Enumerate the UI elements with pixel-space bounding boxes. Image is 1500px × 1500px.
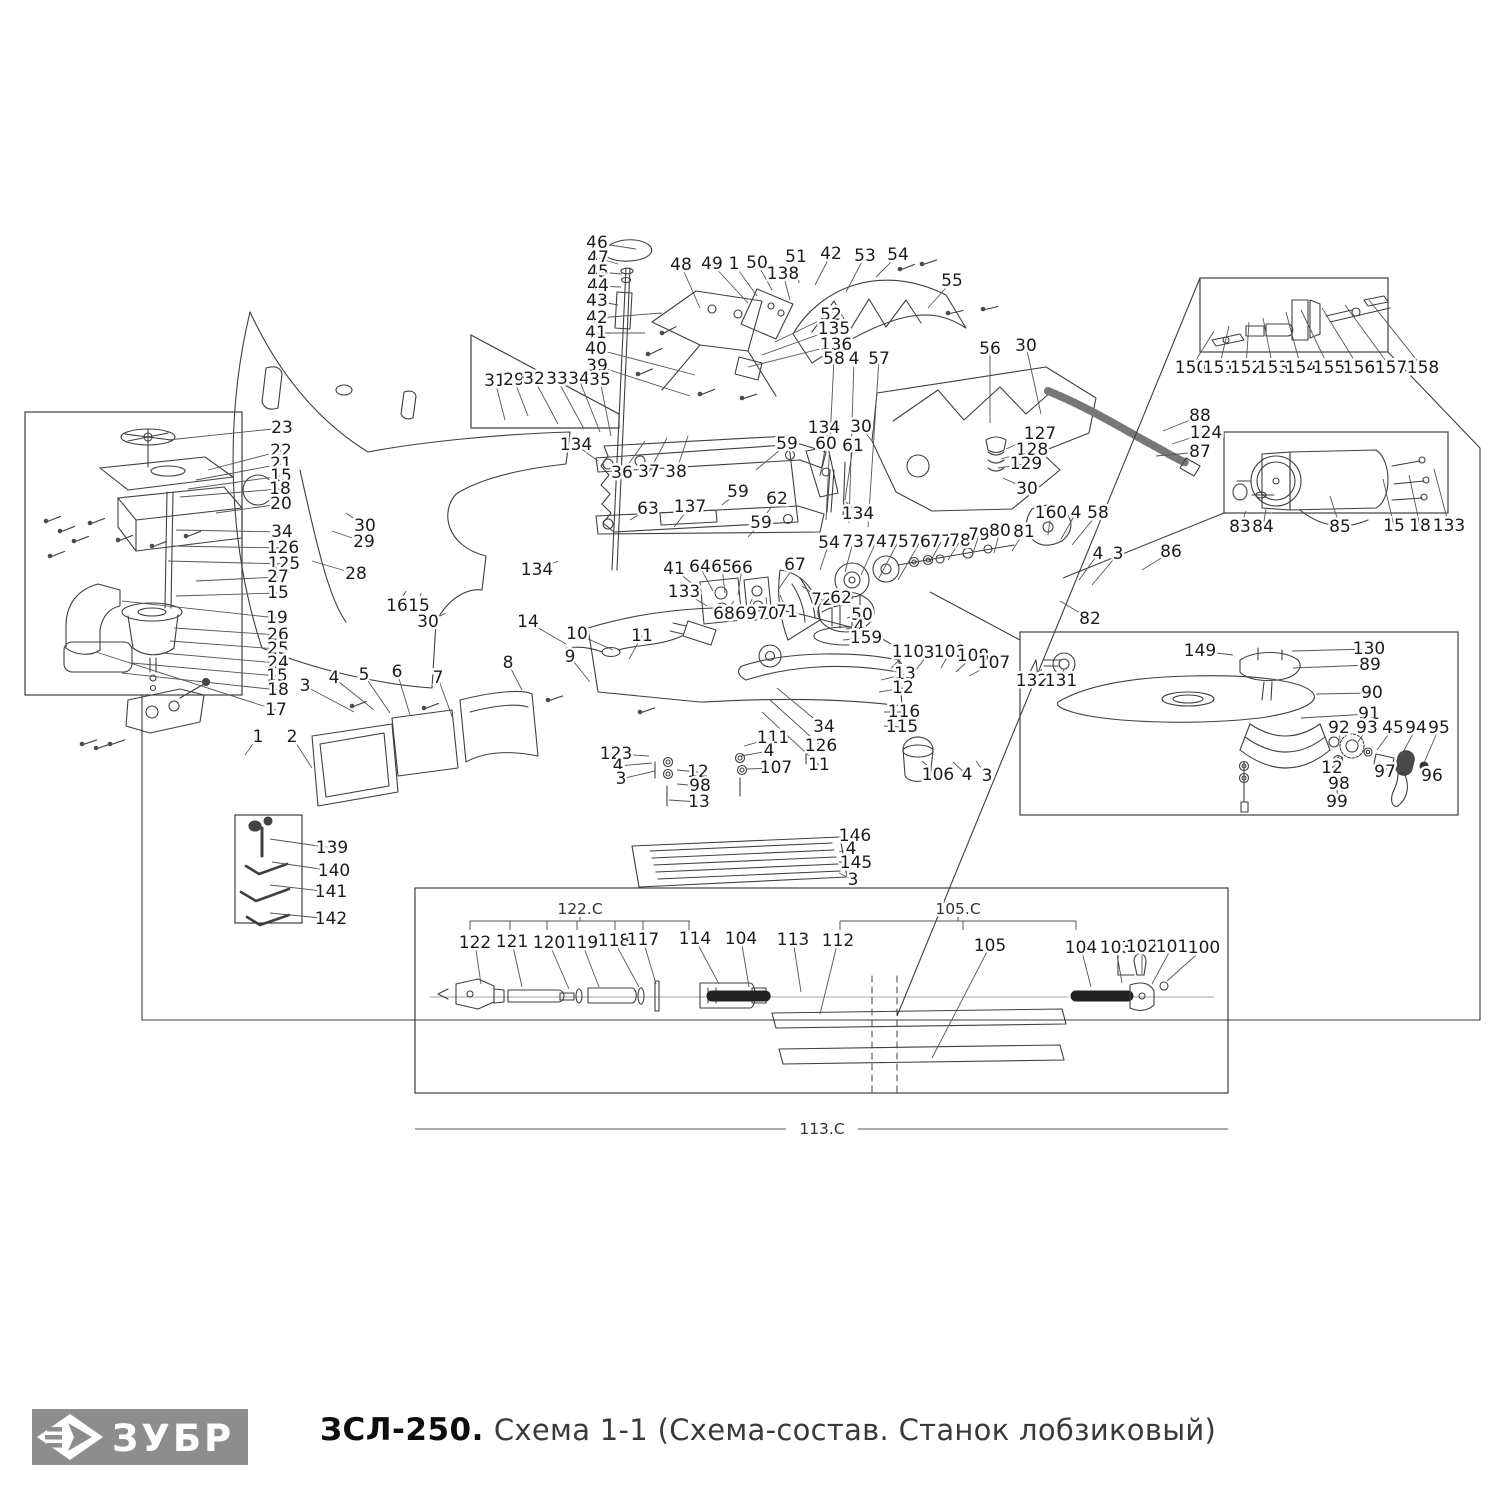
part-label: 133 bbox=[668, 582, 700, 602]
part-label: 37 bbox=[638, 462, 660, 482]
part-label: 104 bbox=[1065, 938, 1097, 958]
part-label: 54 bbox=[818, 533, 840, 553]
leader-line bbox=[196, 577, 278, 581]
part-label: 94 bbox=[1405, 718, 1427, 738]
group-label: 122.C bbox=[557, 900, 602, 918]
part-label: 156 bbox=[1343, 358, 1375, 378]
part-label: 4 bbox=[962, 765, 973, 785]
part-label: 59 bbox=[750, 513, 772, 533]
part-label: 114 bbox=[679, 929, 711, 949]
part-label: 65 bbox=[711, 557, 733, 577]
part-label: 131 bbox=[1045, 671, 1077, 691]
part-label: 62 bbox=[830, 588, 852, 608]
part-label: 4 bbox=[1071, 503, 1082, 523]
part-label: 118 bbox=[598, 931, 630, 951]
part-label: 57 bbox=[868, 349, 890, 369]
part-label: 55 bbox=[941, 271, 963, 291]
part-label: 75 bbox=[887, 532, 909, 552]
part-label: 30 bbox=[417, 612, 439, 632]
part-label: 3 bbox=[848, 870, 859, 890]
part-label: 3 bbox=[616, 769, 627, 789]
part-label: 59 bbox=[727, 482, 749, 502]
part-label: 107 bbox=[978, 653, 1010, 673]
part-label: 84 bbox=[1252, 517, 1274, 537]
part-label: 6 bbox=[392, 662, 403, 682]
part-label: 30 bbox=[1016, 479, 1038, 499]
leader-line bbox=[932, 946, 990, 1058]
part-label: 83 bbox=[1229, 517, 1251, 537]
part-label: 120 bbox=[533, 933, 565, 953]
part-label: 49 bbox=[701, 254, 723, 274]
part-label: 98 bbox=[1328, 774, 1350, 794]
zubr-logo: ЗУБР bbox=[32, 1409, 248, 1465]
part-label: 1 bbox=[253, 727, 264, 747]
leader-line bbox=[188, 476, 281, 489]
part-label: 64 bbox=[689, 557, 711, 577]
part-label: 3 bbox=[300, 676, 311, 696]
leader-line bbox=[122, 673, 278, 690]
leader-line bbox=[176, 593, 278, 596]
part-label: 23 bbox=[271, 418, 293, 438]
part-label: 16 bbox=[386, 596, 408, 616]
part-label: 138 bbox=[767, 264, 799, 284]
part-label: 20 bbox=[270, 494, 292, 514]
part-label: 5 bbox=[359, 665, 370, 685]
part-label: 105 bbox=[974, 936, 1006, 956]
part-label: 110 bbox=[892, 642, 924, 662]
part-label: 141 bbox=[315, 882, 347, 902]
part-label: 35 bbox=[589, 370, 611, 390]
logo-text: ЗУБР bbox=[112, 1417, 234, 1460]
part-label: 15 bbox=[1383, 516, 1405, 536]
detail-box bbox=[235, 815, 302, 923]
part-label: 106 bbox=[922, 765, 954, 785]
part-label: 95 bbox=[1428, 718, 1450, 738]
part-label: 15 bbox=[267, 583, 289, 603]
part-label: 34 bbox=[568, 369, 590, 389]
part-label: 139 bbox=[316, 838, 348, 858]
part-label: 155 bbox=[1313, 358, 1345, 378]
part-label: 87 bbox=[1189, 442, 1211, 462]
part-label: 61 bbox=[842, 436, 864, 456]
part-label: 54 bbox=[887, 245, 909, 265]
part-label: 62 bbox=[766, 489, 788, 509]
part-label: 36 bbox=[611, 463, 633, 483]
part-label: 107 bbox=[760, 758, 792, 778]
part-label: 58 bbox=[1087, 503, 1109, 523]
leader-line bbox=[868, 359, 879, 527]
part-label: 1 bbox=[729, 254, 740, 274]
part-label: 32 bbox=[523, 369, 545, 389]
part-label: 159 bbox=[850, 628, 882, 648]
part-label: 124 bbox=[1190, 423, 1222, 443]
part-label: 18 bbox=[1409, 516, 1431, 536]
part-label: 96 bbox=[1421, 766, 1443, 786]
part-label: 3 bbox=[982, 766, 993, 786]
part-label: 86 bbox=[1160, 542, 1182, 562]
part-label: 10 bbox=[566, 624, 588, 644]
connector-line bbox=[930, 592, 1020, 640]
section-label: 113.C bbox=[799, 1120, 844, 1138]
part-label: 92 bbox=[1328, 718, 1350, 738]
part-label: 50 bbox=[746, 253, 768, 273]
part-label: 133 bbox=[1433, 516, 1465, 536]
leader-line bbox=[305, 686, 354, 712]
part-label: 129 bbox=[1010, 454, 1042, 474]
detail-box bbox=[25, 412, 242, 695]
part-label: 12 bbox=[892, 678, 914, 698]
part-label: 13 bbox=[688, 792, 710, 812]
page: 4647454443424140394849150138514253545552… bbox=[0, 0, 1500, 1500]
part-label: 48 bbox=[670, 255, 692, 275]
part-label: 11 bbox=[631, 626, 653, 646]
part-label: 157 bbox=[1375, 358, 1407, 378]
part-label: 68 bbox=[713, 604, 735, 624]
leader-line bbox=[1026, 346, 1041, 414]
part-label: 76 bbox=[909, 532, 931, 552]
part-label: 51 bbox=[785, 247, 807, 267]
part-label: 134 bbox=[808, 418, 840, 438]
part-label: 41 bbox=[663, 559, 685, 579]
part-label: 158 bbox=[1407, 358, 1439, 378]
part-label: 29 bbox=[503, 370, 525, 390]
part-label: 42 bbox=[820, 244, 842, 264]
part-label: 53 bbox=[854, 246, 876, 266]
part-label: 28 bbox=[345, 564, 367, 584]
scheme-title: ЗСЛ-250. Схема 1-1 (Схема-состав. Станок… bbox=[320, 1412, 1216, 1448]
part-label: 8 bbox=[503, 653, 514, 673]
part-label: 59 bbox=[776, 434, 798, 454]
leader-line bbox=[170, 641, 278, 649]
part-label: 113 bbox=[777, 930, 809, 950]
part-label: 142 bbox=[315, 909, 347, 929]
part-label: 34 bbox=[813, 717, 835, 737]
part-label: 104 bbox=[725, 929, 757, 949]
part-label: 63 bbox=[637, 499, 659, 519]
part-label: 132 bbox=[1016, 671, 1048, 691]
part-label: 18 bbox=[267, 680, 289, 700]
part-label: 7 bbox=[433, 668, 444, 688]
part-label: 79 bbox=[968, 525, 990, 545]
part-label: 134 bbox=[560, 435, 592, 455]
part-label: 101 bbox=[1156, 937, 1188, 957]
part-label: 58 bbox=[823, 349, 845, 369]
part-label: 73 bbox=[842, 532, 864, 552]
part-label: 160 bbox=[1035, 503, 1067, 523]
part-label: 17 bbox=[265, 700, 287, 720]
part-label: 100 bbox=[1188, 938, 1220, 958]
part-label: 71 bbox=[776, 602, 798, 622]
part-label: 9 bbox=[565, 647, 576, 667]
part-label: 38 bbox=[665, 462, 687, 482]
part-label: 30 bbox=[1015, 336, 1037, 356]
part-label: 2 bbox=[287, 727, 298, 747]
part-label: 89 bbox=[1359, 655, 1381, 675]
part-label: 11 bbox=[808, 755, 830, 775]
part-label: 134 bbox=[842, 504, 874, 524]
leader-line bbox=[132, 663, 277, 676]
part-label: 112 bbox=[822, 931, 854, 951]
leader-line bbox=[168, 561, 284, 564]
leader-line bbox=[174, 628, 278, 635]
leader-line bbox=[176, 530, 282, 532]
part-label: 97 bbox=[1374, 762, 1396, 782]
part-label: 121 bbox=[496, 932, 528, 952]
part-label: 4 bbox=[1093, 544, 1104, 564]
part-label: 4 bbox=[329, 668, 340, 688]
part-label: 30 bbox=[850, 417, 872, 437]
footer: ЗУБР ЗСЛ-250. Схема 1-1 (Схема-состав. С… bbox=[0, 1398, 1500, 1478]
part-label: 134 bbox=[521, 560, 553, 580]
part-label: 119 bbox=[566, 933, 598, 953]
part-label: 80 bbox=[989, 521, 1011, 541]
leader-line bbox=[162, 653, 278, 663]
leader-line bbox=[596, 349, 695, 375]
part-label: 149 bbox=[1184, 641, 1216, 661]
part-label: 102 bbox=[1126, 937, 1158, 957]
part-label: 56 bbox=[979, 339, 1001, 359]
part-label: 99 bbox=[1326, 792, 1348, 812]
leader-line bbox=[597, 366, 690, 396]
part-label: 93 bbox=[1356, 718, 1378, 738]
part-label: 4 bbox=[849, 349, 860, 369]
part-label: 14 bbox=[517, 612, 539, 632]
part-label: 140 bbox=[318, 861, 350, 881]
leader-line bbox=[820, 941, 838, 1014]
part-label: 66 bbox=[731, 558, 753, 578]
part-label: 90 bbox=[1361, 683, 1383, 703]
part-label: 45 bbox=[1382, 718, 1404, 738]
part-label: 81 bbox=[1013, 522, 1035, 542]
exploded-diagram: 4647454443424140394849150138514253545552… bbox=[0, 0, 1500, 1390]
part-label: 67 bbox=[784, 555, 806, 575]
part-label: 126 bbox=[805, 736, 837, 756]
connector-line bbox=[142, 448, 1480, 1020]
part-label: 69 bbox=[735, 604, 757, 624]
group-label: 105.C bbox=[935, 900, 980, 918]
part-label: 33 bbox=[546, 369, 568, 389]
leader-line bbox=[168, 428, 282, 440]
part-label: 82 bbox=[1079, 609, 1101, 629]
part-label: 122 bbox=[459, 933, 491, 953]
part-label: 137 bbox=[674, 497, 706, 517]
model-name: ЗСЛ-250. bbox=[320, 1412, 484, 1448]
part-label: 85 bbox=[1329, 517, 1351, 537]
part-label: 74 bbox=[865, 532, 887, 552]
part-label: 3 bbox=[1113, 544, 1124, 564]
part-label: 29 bbox=[353, 532, 375, 552]
part-label: 115 bbox=[886, 717, 918, 737]
scheme-name-text: Схема 1-1 (Схема-состав. Станок лобзиков… bbox=[494, 1413, 1216, 1447]
part-label: 117 bbox=[627, 930, 659, 950]
